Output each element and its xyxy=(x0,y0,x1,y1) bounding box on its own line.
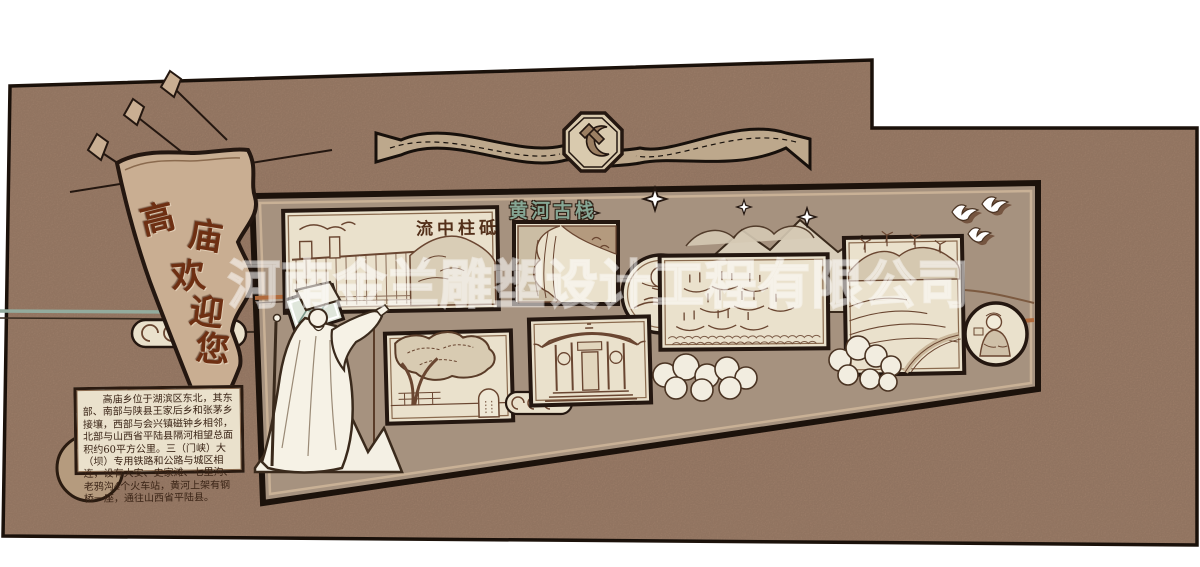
flag-char: 您 xyxy=(194,321,231,372)
panel-boats xyxy=(660,254,829,349)
panel-temple xyxy=(529,316,651,405)
portrait-medallion xyxy=(965,303,1027,365)
intro-text: 高庙乡位于湖滨区东北，其东部、南部与陕县王家后乡和张茅乡接壤，西部与会兴镇磁钟乡… xyxy=(83,393,237,507)
party-emblem-octagon xyxy=(564,113,622,171)
intro-board: 高庙乡位于湖滨区东北，其东部、南部与陕县王家后乡和张茅乡接壤，西部与会兴镇磁钟乡… xyxy=(73,385,244,475)
panel-plank-road xyxy=(514,222,618,304)
panel-dam-title: 流中柱砥 xyxy=(408,213,500,240)
design-canvas: 高 庙 欢 迎 您 流中柱砥 黄河古栈 高庙乡位于湖滨区东北，其东部、南部与陕县… xyxy=(0,0,1200,567)
panel-tree xyxy=(385,330,513,423)
panel-plank-label: 黄河古栈 xyxy=(509,196,613,223)
